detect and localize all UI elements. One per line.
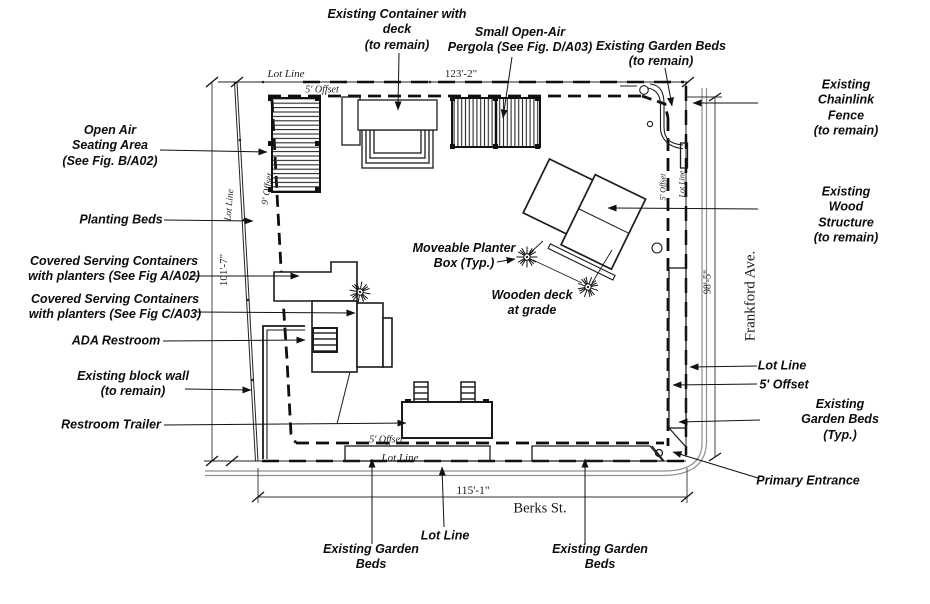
- label-restroom-trailer: Restroom Trailer: [61, 417, 161, 432]
- label-offset-right: 5' Offset: [759, 377, 808, 392]
- label-wood-structure: Existing Wood Structure (to remain): [804, 185, 888, 246]
- street-name-berks: Berks St.: [513, 501, 566, 518]
- plan-text-lot-line-right: Lot Line: [678, 171, 687, 198]
- pergola: [450, 96, 540, 149]
- label-existing-container: Existing Container with deck (to remain): [328, 7, 467, 53]
- label-lot-line-bottom: Lot Line: [421, 528, 470, 543]
- ada-restroom-room: [313, 328, 337, 352]
- plan-text-offset-bottom: 5' Offset: [369, 435, 403, 446]
- label-chainlink-fence: Existing Chainlink Fence (to remain): [804, 78, 888, 139]
- label-garden-beds-bottom-right: Existing Garden Beds: [552, 542, 648, 573]
- existing-wood-structure: [514, 154, 651, 283]
- plan-text-lot-line-bottom: Lot Line: [382, 452, 419, 464]
- plan-text-lot-line-top: Lot Line: [268, 68, 305, 80]
- building-walkway-line: [337, 372, 350, 424]
- site-plan-page: Existing Container with deck (to remain)…: [0, 0, 930, 604]
- site-circle-marker: [652, 243, 662, 253]
- street-name-frankford: Frankford Ave.: [743, 251, 760, 342]
- label-lot-line-right: Lot Line: [758, 358, 807, 373]
- chainlink-fence-curve: [620, 84, 683, 149]
- label-ada-restroom: ADA Restroom: [72, 333, 160, 348]
- label-garden-beds-right: Existing Garden Beds (Typ.): [795, 397, 885, 443]
- label-primary-entrance: Primary Entrance: [756, 473, 860, 488]
- label-open-air-seating: Open Air Seating Area (See Fig. B/A02): [62, 123, 157, 169]
- serving-containers-building: [274, 262, 392, 424]
- label-serving-containers-a: Covered Serving Containers with planters…: [28, 254, 200, 285]
- label-block-wall: Existing block wall (to remain): [77, 369, 189, 400]
- label-garden-beds-top: Existing Garden Beds (to remain): [596, 39, 726, 70]
- plan-text-offset-top: 5' Offset: [305, 85, 339, 96]
- dimension-top: 123'-2": [445, 68, 477, 80]
- label-moveable-planter: Moveable Planter Box (Typ.): [413, 241, 516, 272]
- existing-block-wall: [263, 326, 305, 459]
- dimension-left: 101'-7": [218, 254, 230, 286]
- label-planting-beds: Planting Beds: [79, 212, 162, 227]
- dimension-bottom: 115'-1": [456, 485, 489, 497]
- open-air-seating-area: [268, 96, 320, 192]
- label-garden-beds-bottom-left: Existing Garden Beds: [323, 542, 419, 573]
- label-wooden-deck: Wooden deck at grade: [491, 288, 572, 319]
- existing-container-with-deck: [342, 97, 437, 168]
- dimension-right: 98'-5": [703, 270, 714, 294]
- label-serving-containers-c: Covered Serving Containers with planters…: [29, 292, 201, 323]
- label-pergola: Small Open-Air Pergola (See Fig. D/A03): [448, 25, 592, 56]
- plan-text-offset-right: 5' Offset: [659, 174, 668, 201]
- restroom-trailer: [402, 382, 492, 438]
